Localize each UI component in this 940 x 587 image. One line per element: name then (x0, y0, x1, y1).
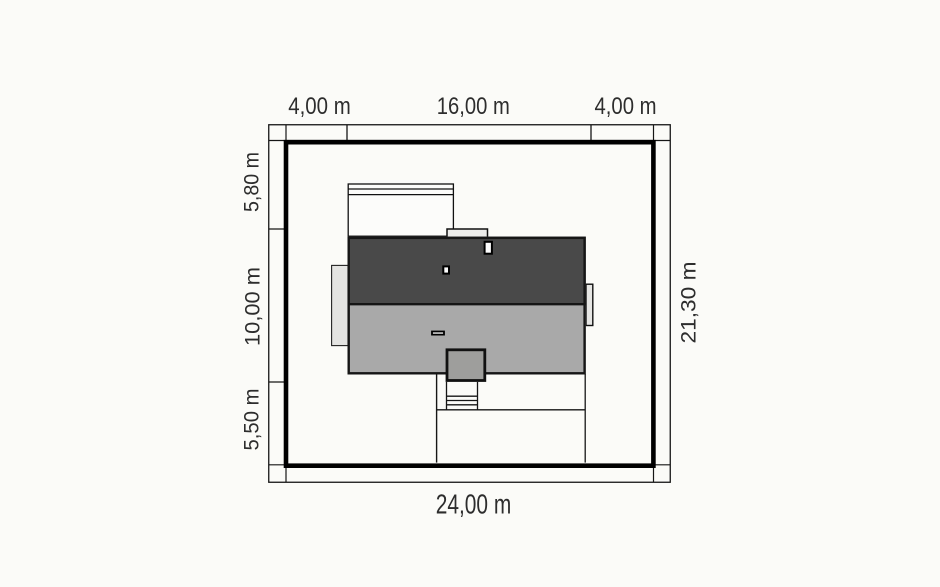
svg-text:10,00 m: 10,00 m (242, 267, 265, 346)
svg-text:5,80 m: 5,80 m (241, 152, 264, 212)
svg-text:4,00 m: 4,00 m (288, 93, 351, 120)
svg-text:21,30 m: 21,30 m (678, 262, 701, 344)
svg-text:16,00 m: 16,00 m (437, 93, 510, 120)
svg-text:4,00 m: 4,00 m (595, 93, 657, 120)
svg-text:5,50 m: 5,50 m (241, 389, 264, 451)
svg-text:24,00 m: 24,00 m (436, 489, 512, 520)
